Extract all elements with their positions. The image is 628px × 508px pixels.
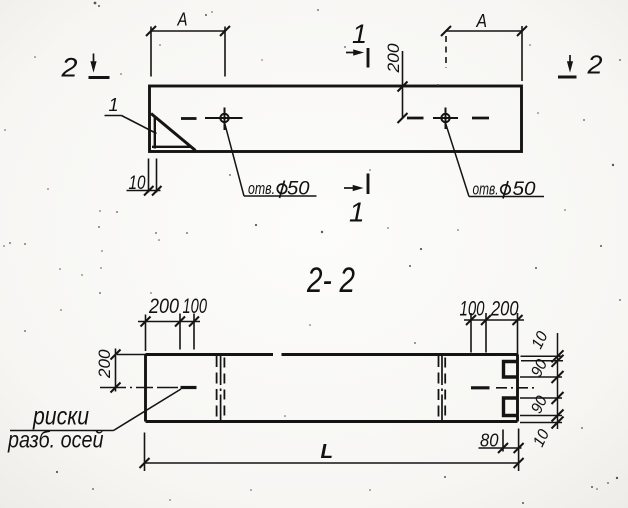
svg-text:A: A xyxy=(476,11,487,31)
svg-text:10: 10 xyxy=(129,173,146,194)
svg-text:50: 50 xyxy=(287,179,310,200)
svg-text:A: A xyxy=(177,10,188,30)
svg-text:50: 50 xyxy=(513,179,536,200)
svg-text:200: 200 xyxy=(490,298,519,321)
svg-text:100: 100 xyxy=(460,298,485,321)
svg-text:L: L xyxy=(321,440,334,463)
svg-text:80: 80 xyxy=(480,431,499,451)
svg-text:отв.: отв. xyxy=(473,180,499,199)
svg-text:отв.: отв. xyxy=(248,179,275,198)
svg-text:200: 200 xyxy=(148,295,179,318)
svg-text:200: 200 xyxy=(385,43,403,74)
svg-text:200: 200 xyxy=(96,349,114,379)
svg-text:2- 2: 2- 2 xyxy=(306,261,355,300)
svg-text:2: 2 xyxy=(60,53,77,83)
svg-text:разб. осей: разб. осей xyxy=(7,427,104,453)
svg-text:2: 2 xyxy=(586,50,603,80)
svg-text:100: 100 xyxy=(183,295,208,318)
svg-text:1: 1 xyxy=(349,197,365,228)
svg-text:1: 1 xyxy=(352,19,367,49)
svg-text:1: 1 xyxy=(109,95,119,115)
